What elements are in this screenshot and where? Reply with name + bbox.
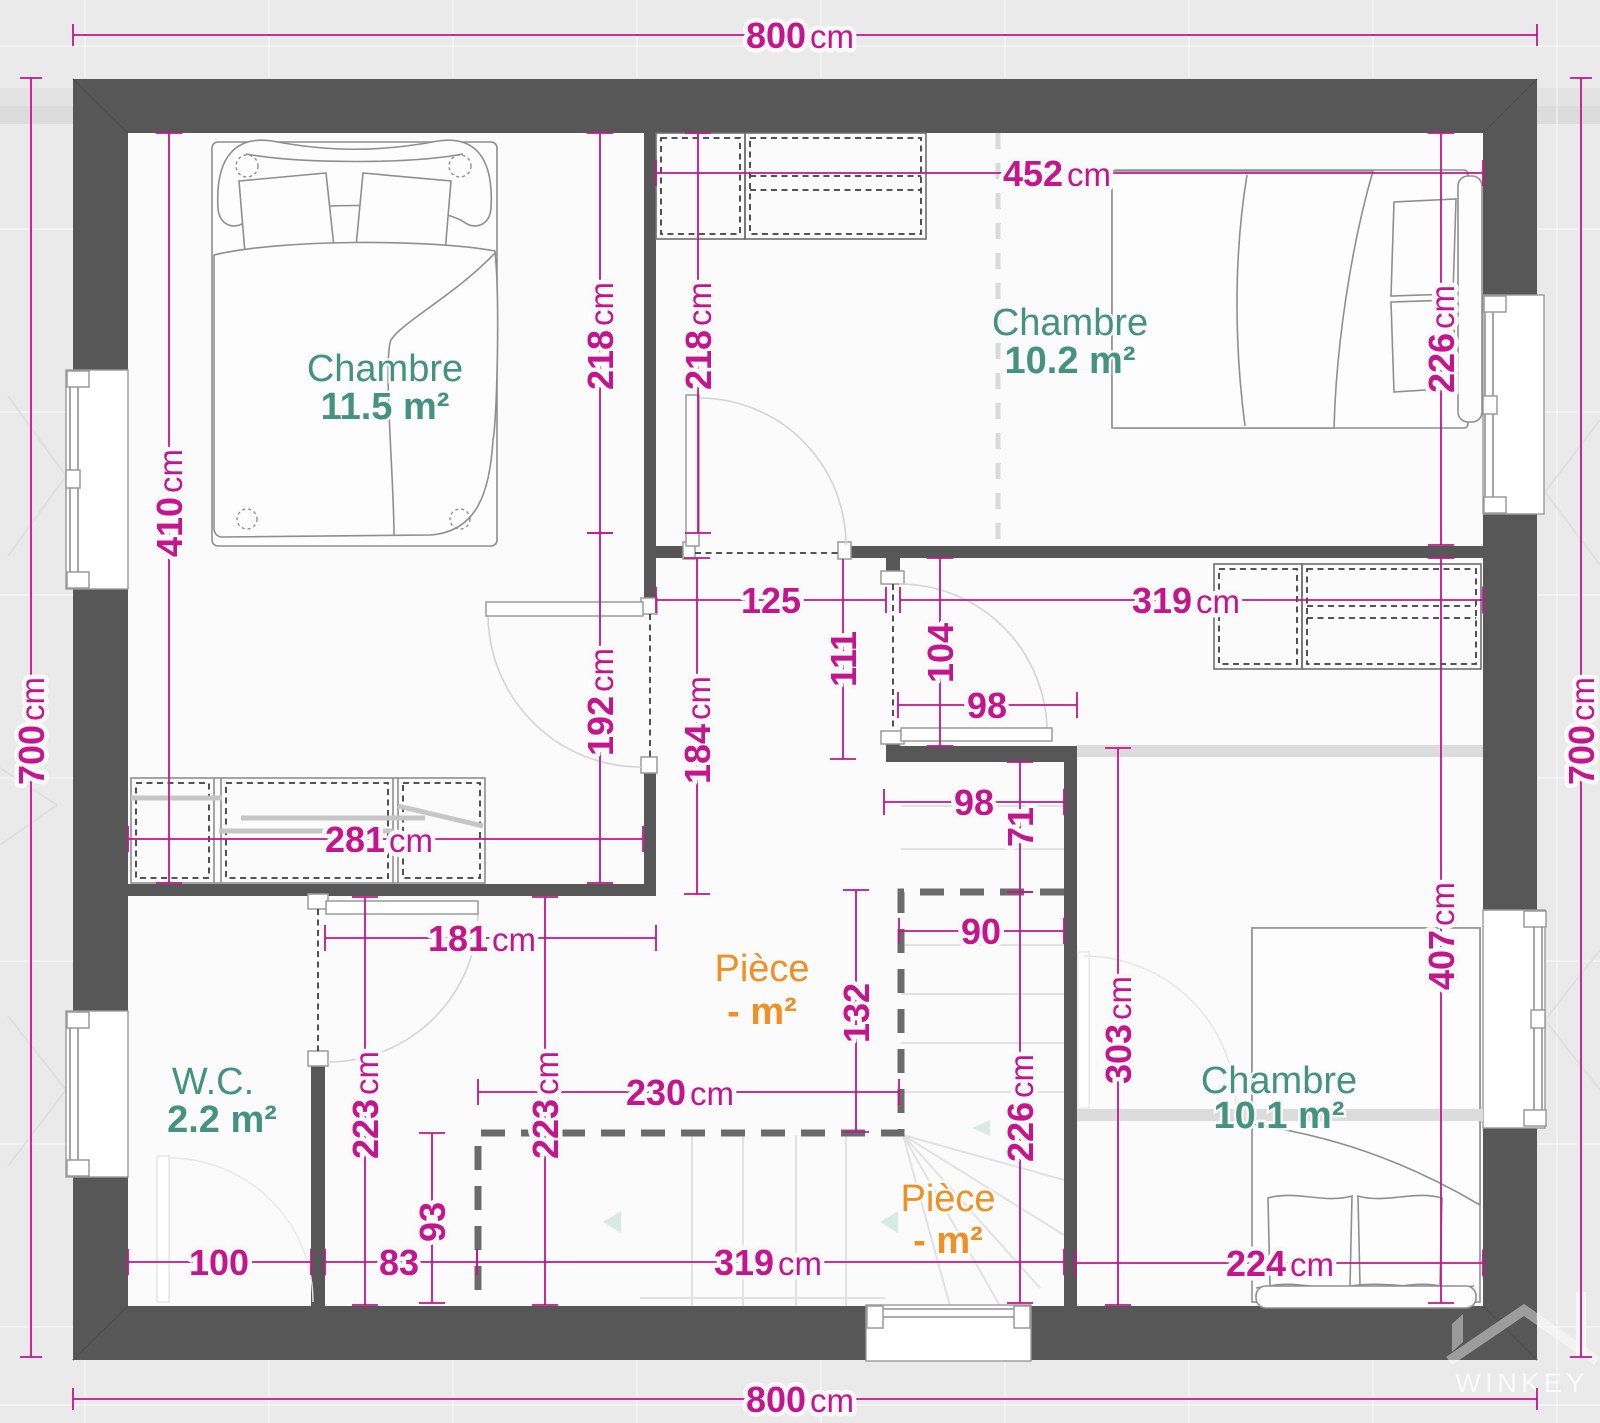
svg-text:226cm: 226cm bbox=[1421, 285, 1462, 393]
svg-text:100: 100 bbox=[189, 1242, 249, 1283]
svg-text:700cm: 700cm bbox=[11, 677, 52, 785]
svg-text:800cm: 800cm bbox=[746, 15, 854, 56]
svg-text:W.C.: W.C. bbox=[172, 1061, 254, 1103]
svg-text:WINKEY: WINKEY bbox=[1455, 1368, 1589, 1398]
svg-text:111: 111 bbox=[823, 631, 864, 687]
svg-text:90: 90 bbox=[961, 911, 1001, 952]
svg-text:800cm: 800cm bbox=[746, 1379, 854, 1420]
svg-text:11.5 m²: 11.5 m² bbox=[321, 386, 450, 428]
svg-text:319cm: 319cm bbox=[714, 1242, 822, 1283]
svg-text:700cm: 700cm bbox=[1561, 677, 1600, 785]
svg-text:Pièce: Pièce bbox=[900, 1178, 995, 1220]
svg-text:303cm: 303cm bbox=[1098, 976, 1139, 1084]
svg-text:224cm: 224cm bbox=[1226, 1243, 1334, 1284]
svg-text:104: 104 bbox=[920, 623, 961, 683]
svg-text:Pièce: Pièce bbox=[714, 948, 809, 990]
svg-text:71: 71 bbox=[1000, 807, 1041, 847]
svg-text:319cm: 319cm bbox=[1132, 580, 1240, 621]
svg-text:10.1 m²: 10.1 m² bbox=[1214, 1095, 1345, 1137]
svg-text:Chambre: Chambre bbox=[992, 302, 1148, 344]
svg-text:98: 98 bbox=[954, 782, 994, 823]
svg-text:226cm: 226cm bbox=[1000, 1054, 1041, 1162]
svg-text:223cm: 223cm bbox=[345, 1051, 386, 1159]
svg-text:407cm: 407cm bbox=[1421, 882, 1462, 990]
svg-text:184cm: 184cm bbox=[677, 676, 718, 784]
svg-text:218cm: 218cm bbox=[678, 282, 719, 390]
svg-text:- m²: - m² bbox=[727, 991, 797, 1033]
svg-text:410cm: 410cm bbox=[149, 449, 190, 557]
svg-text:93: 93 bbox=[412, 1202, 453, 1242]
svg-text:452cm: 452cm bbox=[1003, 153, 1111, 194]
svg-text:181cm: 181cm bbox=[428, 918, 536, 959]
svg-text:230cm: 230cm bbox=[626, 1072, 734, 1113]
svg-text:218cm: 218cm bbox=[580, 282, 621, 390]
svg-text:281cm: 281cm bbox=[325, 819, 433, 860]
svg-text:223cm: 223cm bbox=[525, 1051, 566, 1159]
svg-text:132: 132 bbox=[836, 983, 877, 1043]
svg-text:98: 98 bbox=[967, 685, 1007, 726]
svg-text:10.2 m²: 10.2 m² bbox=[1005, 340, 1136, 382]
svg-text:192cm: 192cm bbox=[580, 648, 621, 756]
svg-text:83: 83 bbox=[379, 1242, 419, 1283]
svg-text:2.2 m²: 2.2 m² bbox=[167, 1099, 277, 1141]
svg-text:125: 125 bbox=[741, 580, 801, 621]
svg-text:Chambre: Chambre bbox=[307, 348, 463, 390]
svg-text:- m²: - m² bbox=[913, 1220, 983, 1262]
